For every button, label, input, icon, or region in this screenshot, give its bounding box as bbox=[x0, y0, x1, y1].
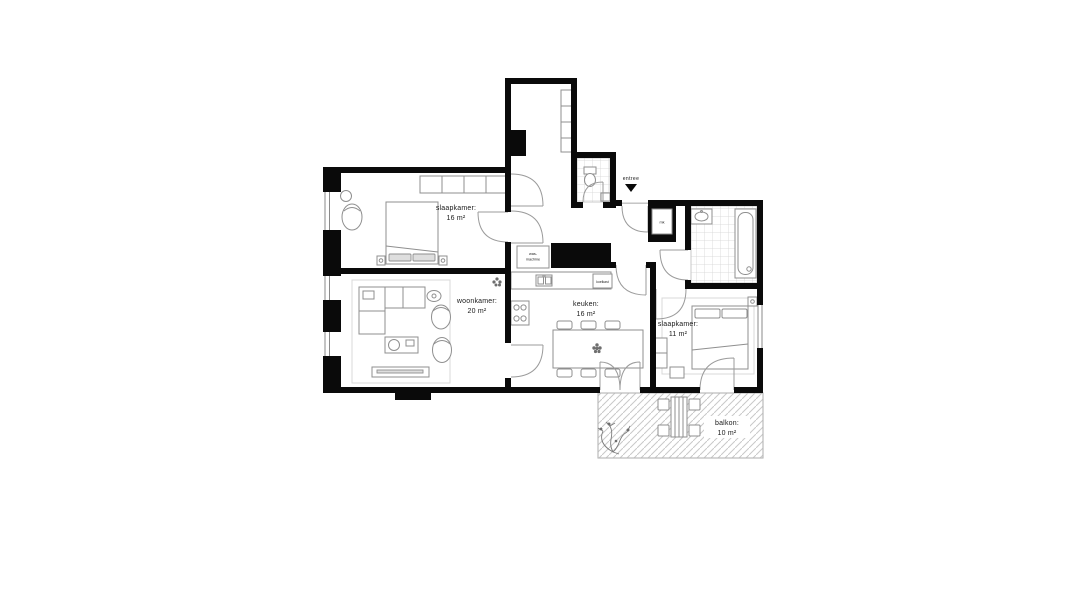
nightstand bbox=[377, 256, 385, 265]
living-room: woonkamer: 20 m² bbox=[352, 280, 497, 383]
bedroom-2: slaapkamer: 11 m² bbox=[654, 297, 757, 378]
washer-label-line1: was- bbox=[529, 252, 538, 256]
bathtub bbox=[735, 209, 756, 278]
fridge-label: koelkast bbox=[596, 280, 608, 284]
dining-table bbox=[553, 321, 643, 377]
nightstand bbox=[748, 297, 757, 306]
meter-cupboard-label: mk bbox=[659, 221, 664, 225]
dining-chair bbox=[557, 369, 572, 377]
room-label-woonkamer: woonkamer: bbox=[456, 298, 497, 305]
tv-cabinet bbox=[372, 367, 429, 377]
washer-closet: was- machine bbox=[517, 246, 549, 268]
entree-arrow-icon bbox=[625, 184, 637, 192]
room-area-balkon: 10 m² bbox=[718, 430, 737, 437]
entree-label: entree bbox=[623, 176, 640, 182]
washer-label-line2: machine bbox=[526, 258, 540, 262]
room-label-keuken: keuken: bbox=[573, 301, 599, 308]
room-area-keuken: 16 m² bbox=[577, 311, 596, 318]
entree-annotation: entree bbox=[623, 176, 640, 192]
entrance-threshold bbox=[622, 203, 648, 204]
dining-chair bbox=[605, 321, 620, 329]
door-living-kitchen bbox=[511, 345, 543, 377]
dining-chair bbox=[557, 321, 572, 329]
balcony-chair bbox=[658, 425, 669, 436]
armchair bbox=[433, 338, 452, 363]
toilet-room bbox=[577, 158, 610, 202]
corner-sofa bbox=[359, 287, 425, 334]
stove-hob bbox=[511, 301, 529, 325]
door-bedroom1-leaf bbox=[478, 212, 508, 242]
door-kitchen bbox=[616, 265, 646, 295]
side-table bbox=[341, 191, 352, 202]
balcony: balkon: 10 m² bbox=[598, 393, 763, 458]
nightstand bbox=[439, 256, 447, 265]
fridge: koelkast bbox=[593, 274, 612, 288]
plant-icon bbox=[492, 277, 501, 286]
armchair bbox=[432, 305, 451, 329]
corner-basin bbox=[601, 193, 610, 201]
reading-chair bbox=[341, 191, 363, 231]
side-table-round bbox=[427, 291, 441, 302]
room-label-balkon: balkon: bbox=[715, 420, 739, 427]
room-label-slaapkamer-2: slaapkamer: bbox=[658, 321, 698, 328]
door-bathroom bbox=[660, 250, 688, 280]
door-bedroom1-hall-leaf bbox=[511, 211, 543, 243]
dining-chair bbox=[581, 369, 596, 377]
floorplan-drawing: balkon: 10 m² slaapkamer: 16 m bbox=[0, 0, 1092, 606]
room-label-slaapkamer-1: slaapkamer: bbox=[436, 205, 476, 212]
door-bedroom2 bbox=[656, 289, 686, 319]
coffee-table bbox=[385, 337, 418, 353]
door-entree bbox=[622, 206, 648, 232]
wardrobe bbox=[420, 176, 507, 193]
chair bbox=[670, 367, 684, 378]
bathroom bbox=[691, 206, 757, 283]
balcony-chair bbox=[658, 399, 669, 410]
balcony-chair bbox=[689, 425, 700, 436]
double-bed bbox=[386, 202, 438, 264]
door-corridor bbox=[511, 174, 543, 206]
balcony-chair bbox=[689, 399, 700, 410]
room-area-woonkamer: 20 m² bbox=[468, 308, 487, 315]
washbasin bbox=[691, 209, 712, 224]
room-area-slaapkamer-1: 16 m² bbox=[447, 215, 466, 222]
dining-chair bbox=[581, 321, 596, 329]
floorplan-canvas: balkon: 10 m² slaapkamer: 16 m bbox=[0, 0, 1092, 606]
room-area-slaapkamer-2: 11 m² bbox=[669, 331, 688, 338]
